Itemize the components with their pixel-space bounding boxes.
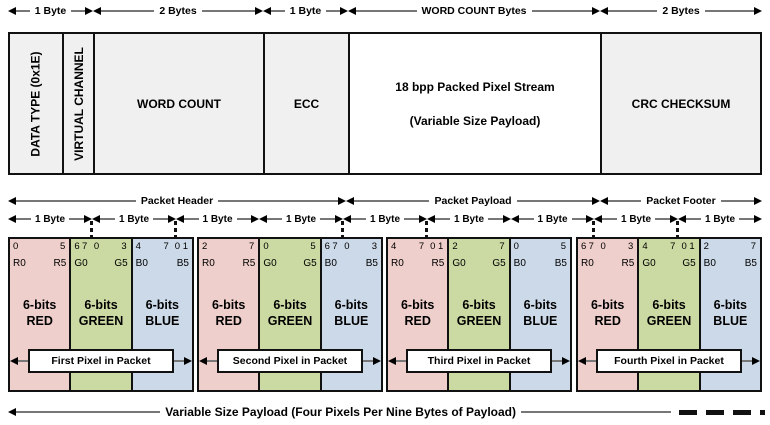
arrow-line xyxy=(532,10,593,12)
arrowhead-left-icon xyxy=(8,7,16,15)
arrow-byte-3: 1 Byte xyxy=(176,212,259,226)
component-bit-range: R0R5 xyxy=(10,258,69,269)
arrow-line xyxy=(552,360,562,362)
arrow-line xyxy=(71,10,85,12)
component-label: 6-bitsBLUE xyxy=(322,297,381,330)
arrow-label: 1 Byte xyxy=(30,5,72,17)
arrow-line xyxy=(517,200,592,202)
arrow-label: 2 Bytes xyxy=(657,5,704,17)
component-bit-range: G0G5 xyxy=(260,258,319,269)
arrow-line xyxy=(655,218,670,220)
arrow-line xyxy=(602,218,617,220)
arrowhead-right-icon xyxy=(754,197,762,205)
arrow-line xyxy=(16,200,136,202)
arrow-line xyxy=(320,218,335,220)
arrow-line xyxy=(721,200,754,202)
arrow-line xyxy=(271,10,285,12)
arrowhead-left-icon xyxy=(176,215,184,223)
arrow-label: 1 Byte xyxy=(617,214,655,225)
arrow-label: Packet Footer xyxy=(641,195,720,207)
arrow-label: Packet Payload xyxy=(429,195,516,207)
arrowhead-left-icon xyxy=(92,215,100,223)
pixel-label-arrow: Third Pixel in Packet xyxy=(388,349,570,373)
field-label: WORD COUNT xyxy=(137,97,221,111)
arrowhead-left-icon xyxy=(8,215,16,223)
field-label-line1: 18 bpp Packed Pixel Stream xyxy=(395,80,554,94)
bit-numbers: 4701 xyxy=(639,241,698,254)
arrow-line xyxy=(608,10,657,12)
arrowhead-right-icon xyxy=(255,7,263,15)
arrowhead-right-icon xyxy=(754,7,762,15)
arrowhead-right-icon xyxy=(562,357,570,365)
component-label: 6-bitsRED xyxy=(199,297,258,330)
arrowhead-left-icon xyxy=(427,215,435,223)
arrow-line xyxy=(608,200,641,202)
component-bit-range: R0R5 xyxy=(199,258,258,269)
arrowhead-left-icon xyxy=(346,197,354,205)
arrow-byte-7: 1 Byte xyxy=(511,212,594,226)
arrowhead-left-icon xyxy=(594,215,602,223)
arrow-line xyxy=(586,360,596,362)
arrow-line xyxy=(705,10,754,12)
field-virtual-channel: VIRTUAL CHANNEL xyxy=(62,32,95,175)
field-label: ECC xyxy=(294,97,319,111)
arrow-line xyxy=(404,218,419,220)
bit-numbers: 27 xyxy=(199,241,258,254)
bit-numbers: 05 xyxy=(260,241,319,254)
field-pixel-stream: 18 bpp Packed Pixel Stream (Variable Siz… xyxy=(348,32,602,175)
arrow-label: WORD COUNT Bytes xyxy=(417,5,532,17)
arrowhead-right-icon xyxy=(754,215,762,223)
field-label: VIRTUAL CHANNEL xyxy=(72,47,86,161)
arrow-label: 1 Byte xyxy=(282,214,320,225)
arrow-line xyxy=(16,10,30,12)
component-label: 6-bitsRED xyxy=(388,297,447,330)
arrow-2bytes-wordcount: 2 Bytes xyxy=(93,4,263,18)
arrow-line xyxy=(686,218,701,220)
arrow-2bytes-crc: 2 Bytes xyxy=(600,4,762,18)
arrow-line xyxy=(396,360,406,362)
arrow-line xyxy=(488,218,503,220)
field-data-type: DATA TYPE (0x1E) xyxy=(8,32,64,175)
arrowhead-right-icon xyxy=(85,7,93,15)
component-bit-range: B0B5 xyxy=(701,258,760,269)
arrow-byte-9: 1 Byte xyxy=(678,212,762,226)
dsi-packet-diagram: 1 Byte 2 Bytes 1 Byte WORD COUNT Bytes 2… xyxy=(0,0,770,425)
arrow-line xyxy=(519,218,534,220)
component-label: 6-bitsGREEN xyxy=(639,297,698,330)
arrow-packet-footer: Packet Footer xyxy=(600,194,762,208)
arrowhead-left-icon xyxy=(578,357,586,365)
arrow-line xyxy=(101,10,154,12)
field-label: CRC CHECKSUM xyxy=(632,97,731,111)
component-label: 6-bitsGREEN xyxy=(449,297,508,330)
component-bit-range: R0R5 xyxy=(388,258,447,269)
component-bit-range: B0B5 xyxy=(322,258,381,269)
arrowhead-right-icon xyxy=(752,357,760,365)
component-label: 6-bitsRED xyxy=(578,297,637,330)
arrowhead-left-icon xyxy=(93,7,101,15)
component-bit-range: G0G5 xyxy=(449,258,508,269)
arrow-byte-2: 1 Byte xyxy=(92,212,176,226)
arrow-line xyxy=(435,218,450,220)
bit-numbers: 27 xyxy=(449,241,508,254)
arrow-label: 1 Byte xyxy=(366,214,404,225)
arrow-line xyxy=(742,360,752,362)
component-bit-range: R0R5 xyxy=(578,258,637,269)
arrow-line xyxy=(16,218,31,220)
field-crc-checksum: CRC CHECKSUM xyxy=(600,32,762,175)
field-ecc: ECC xyxy=(263,32,350,175)
pixel-label-badge: Fourth Pixel in Packet xyxy=(596,349,742,373)
pixel-label-arrow: Fourth Pixel in Packet xyxy=(578,349,760,373)
pixel-group-3: 4701 R0R5 6-bitsRED 27 G0G5 6-bitsGREEN … xyxy=(386,237,572,392)
component-bit-range: G0G5 xyxy=(639,258,698,269)
arrow-byte-5: 1 Byte xyxy=(343,212,427,226)
arrowhead-left-icon xyxy=(348,7,356,15)
arrow-line xyxy=(184,218,199,220)
field-label-line2: (Variable Size Payload) xyxy=(410,114,541,128)
bit-numbers: 27 xyxy=(701,241,760,254)
arrow-label: 1 Byte xyxy=(31,214,69,225)
arrow-line xyxy=(100,218,115,220)
variable-payload-label: Variable Size Payload (Four Pixels Per N… xyxy=(160,405,521,419)
arrow-line xyxy=(202,10,255,12)
arrowhead-left-icon xyxy=(388,357,396,365)
field-label: DATA TYPE (0x1E) xyxy=(29,51,43,156)
arrowhead-left-icon xyxy=(199,357,207,365)
arrow-label: 1 Byte xyxy=(450,214,488,225)
arrowhead-left-icon xyxy=(511,215,519,223)
arrowhead-right-icon xyxy=(592,7,600,15)
arrow-line xyxy=(16,411,160,413)
variable-payload-arrow: Variable Size Payload (Four Pixels Per N… xyxy=(8,404,765,420)
arrow-line xyxy=(739,218,754,220)
arrowhead-right-icon xyxy=(184,357,192,365)
arrowhead-left-icon xyxy=(8,197,16,205)
pixel-label-arrow: First Pixel in Packet xyxy=(10,349,192,373)
component-label: 6-bitsBLUE xyxy=(701,297,760,330)
arrow-label: 1 Byte xyxy=(534,214,572,225)
arrowhead-left-icon xyxy=(600,197,608,205)
arrow-line xyxy=(237,218,252,220)
component-label: 6-bitsBLUE xyxy=(133,297,192,330)
pixel-group-1: 05 R0R5 6-bitsRED 6703 G0G5 6-bitsGREEN … xyxy=(8,237,194,392)
component-label: 6-bitsGREEN xyxy=(260,297,319,330)
component-bit-range: B0B5 xyxy=(133,258,192,269)
arrow-packet-payload: Packet Payload xyxy=(346,194,600,208)
arrow-line xyxy=(207,360,217,362)
pixel-label-badge: Third Pixel in Packet xyxy=(406,349,552,373)
arrow-byte-8: 1 Byte xyxy=(594,212,678,226)
arrowhead-right-icon xyxy=(338,197,346,205)
arrow-label: 1 Byte xyxy=(701,214,739,225)
arrow-line xyxy=(218,200,338,202)
pixel-label-badge: Second Pixel in Packet xyxy=(217,349,363,373)
bit-numbers: 4701 xyxy=(388,241,447,254)
arrowhead-right-icon xyxy=(340,7,348,15)
arrow-packet-header: Packet Header xyxy=(8,194,346,208)
arrow-line xyxy=(153,218,168,220)
arrowhead-right-icon xyxy=(592,197,600,205)
arrow-line xyxy=(354,200,429,202)
pixel-group-2: 27 R0R5 6-bitsRED 05 G0G5 6-bitsGREEN 67… xyxy=(197,237,383,392)
arrow-1byte-ecc: 1 Byte xyxy=(263,4,348,18)
component-bit-range: G0G5 xyxy=(71,258,130,269)
arrowhead-right-icon xyxy=(251,215,259,223)
arrow-line xyxy=(69,218,84,220)
arrowhead-left-icon xyxy=(678,215,686,223)
arrow-wordcount-bytes: WORD COUNT Bytes xyxy=(348,4,600,18)
bit-numbers: 6703 xyxy=(578,241,637,254)
arrow-1byte-dataid: 1 Byte xyxy=(8,4,93,18)
arrowhead-left-icon xyxy=(10,357,18,365)
field-word-count: WORD COUNT xyxy=(93,32,265,175)
bit-numbers: 05 xyxy=(10,241,69,254)
arrowhead-left-icon xyxy=(600,7,608,15)
component-bit-range: B0B5 xyxy=(511,258,570,269)
bit-numbers: 6703 xyxy=(322,241,381,254)
arrow-label: Packet Header xyxy=(136,195,218,207)
arrow-line xyxy=(572,218,587,220)
arrow-line xyxy=(18,360,28,362)
component-label: 6-bitsBLUE xyxy=(511,297,570,330)
arrowhead-left-icon xyxy=(8,408,16,416)
component-label: 6-bitsRED xyxy=(10,297,69,330)
arrowhead-right-icon xyxy=(373,357,381,365)
arrowhead-left-icon xyxy=(263,7,271,15)
arrowhead-left-icon xyxy=(259,215,267,223)
arrow-line xyxy=(363,360,373,362)
arrow-line xyxy=(267,218,282,220)
arrowhead-right-icon xyxy=(503,215,511,223)
arrow-line xyxy=(521,411,671,413)
pixel-label-badge: First Pixel in Packet xyxy=(28,349,174,373)
arrow-byte-1: 1 Byte xyxy=(8,212,92,226)
arrow-byte-6: 1 Byte xyxy=(427,212,511,226)
arrow-label: 2 Bytes xyxy=(154,5,201,17)
component-label: 6-bitsGREEN xyxy=(71,297,130,330)
bit-numbers: 4701 xyxy=(133,241,192,254)
arrow-label: 1 Byte xyxy=(199,214,237,225)
continuation-dashes xyxy=(679,410,765,415)
arrow-label: 1 Byte xyxy=(285,5,327,17)
arrow-line xyxy=(326,10,340,12)
arrow-line xyxy=(174,360,184,362)
bit-numbers: 05 xyxy=(511,241,570,254)
pixel-label-arrow: Second Pixel in Packet xyxy=(199,349,381,373)
arrow-line xyxy=(356,10,417,12)
pixel-group-4: 6703 R0R5 6-bitsRED 4701 G0G5 6-bitsGREE… xyxy=(576,237,762,392)
arrow-line xyxy=(351,218,366,220)
arrow-byte-4: 1 Byte xyxy=(259,212,343,226)
arrow-label: 1 Byte xyxy=(115,214,153,225)
arrowhead-left-icon xyxy=(343,215,351,223)
bit-numbers: 6703 xyxy=(71,241,130,254)
